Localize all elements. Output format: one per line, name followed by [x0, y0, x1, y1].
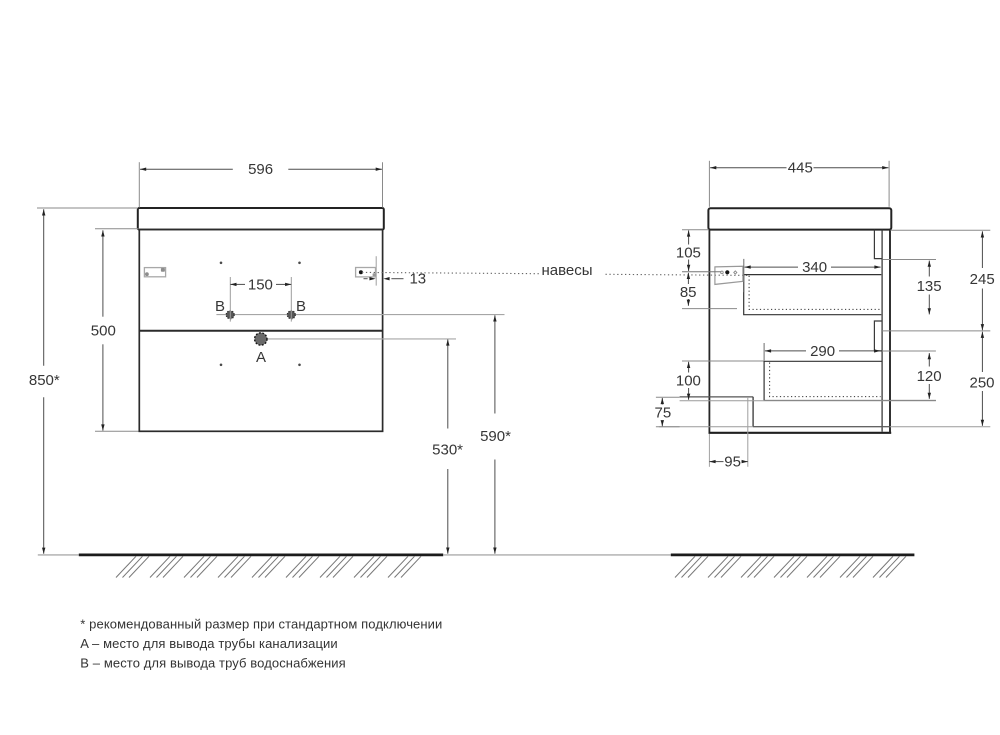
svg-text:75: 75 — [655, 405, 672, 422]
svg-text:245: 245 — [970, 271, 995, 288]
svg-text:A – место для вывода трубы кан: A – место для вывода трубы канализации — [80, 636, 337, 651]
svg-text:850*: 850* — [29, 372, 60, 389]
svg-text:445: 445 — [788, 159, 813, 176]
svg-text:530*: 530* — [432, 441, 463, 458]
svg-text:B: B — [296, 298, 306, 315]
svg-text:120: 120 — [917, 368, 942, 385]
svg-text:B: B — [215, 298, 225, 315]
svg-text:95: 95 — [724, 454, 741, 471]
svg-text:135: 135 — [917, 278, 942, 295]
svg-text:290: 290 — [810, 343, 835, 360]
svg-text:100: 100 — [676, 373, 701, 390]
svg-text:85: 85 — [680, 284, 697, 301]
svg-text:596: 596 — [248, 161, 273, 178]
svg-text:340: 340 — [802, 259, 827, 276]
svg-text:150: 150 — [248, 277, 273, 294]
svg-text:105: 105 — [676, 244, 701, 261]
svg-text:250: 250 — [969, 374, 994, 391]
svg-text:B – место для вывода труб водо: B – место для вывода труб водоснабжения — [80, 655, 345, 670]
svg-text:A: A — [256, 349, 266, 366]
svg-text:* рекомендованный размер при с: * рекомендованный размер при стандартном… — [80, 617, 442, 632]
svg-text:590*: 590* — [480, 428, 511, 445]
svg-text:навесы: навесы — [541, 262, 592, 279]
svg-text:500: 500 — [91, 323, 116, 340]
